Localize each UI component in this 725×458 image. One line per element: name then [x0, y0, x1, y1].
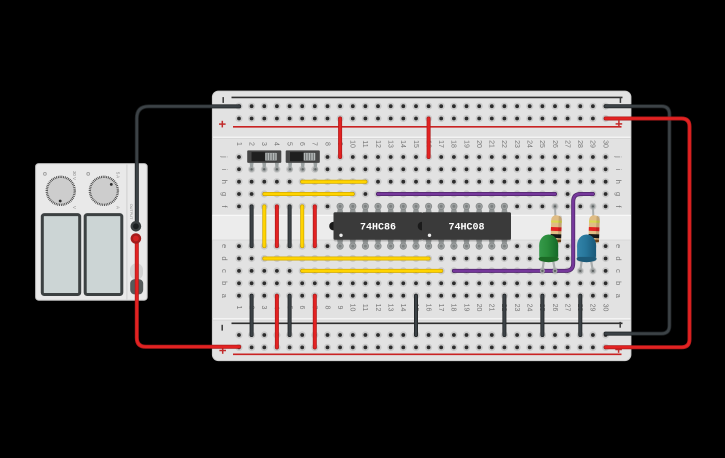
svg-text:30 V: 30 V	[72, 171, 77, 180]
svg-text:c: c	[614, 269, 623, 273]
svg-text:1: 1	[235, 142, 242, 146]
svg-text:74HC86: 74HC86	[360, 223, 396, 234]
svg-text:18: 18	[450, 140, 457, 148]
svg-text:25: 25	[538, 140, 545, 148]
svg-text:18: 18	[450, 304, 457, 312]
svg-text:5 A: 5 A	[116, 172, 121, 178]
svg-text:j: j	[220, 155, 229, 158]
svg-text:8: 8	[323, 306, 330, 310]
svg-text:6: 6	[298, 306, 305, 310]
svg-text:d: d	[614, 256, 623, 260]
svg-text:74HC08: 74HC08	[448, 223, 484, 234]
svg-text:28: 28	[576, 140, 583, 148]
svg-text:12: 12	[374, 140, 381, 148]
svg-text:e: e	[220, 244, 229, 248]
svg-text:7: 7	[311, 142, 318, 146]
svg-text:e: e	[614, 244, 623, 248]
svg-text:12: 12	[374, 304, 381, 312]
svg-text:30: 30	[601, 304, 608, 312]
svg-text:d: d	[220, 256, 229, 260]
svg-text:3: 3	[260, 142, 267, 146]
svg-text:4: 4	[273, 142, 280, 146]
svg-text:13: 13	[387, 140, 394, 148]
svg-text:19: 19	[462, 304, 469, 312]
svg-text:11: 11	[361, 140, 368, 147]
svg-text:11: 11	[361, 304, 368, 311]
svg-text:g: g	[220, 192, 229, 196]
svg-text:16: 16	[424, 304, 431, 312]
svg-text:10: 10	[349, 140, 356, 148]
svg-text:1: 1	[235, 306, 242, 310]
svg-text:15: 15	[412, 140, 419, 148]
svg-text:23: 23	[513, 304, 520, 312]
svg-text:26: 26	[551, 304, 558, 312]
svg-text:14: 14	[399, 304, 406, 312]
svg-text:c: c	[220, 269, 229, 273]
svg-text:27: 27	[563, 140, 570, 148]
svg-text:5: 5	[285, 142, 292, 146]
svg-text:j: j	[614, 155, 623, 158]
svg-text:21: 21	[488, 140, 495, 148]
svg-text:30: 30	[601, 140, 608, 148]
svg-text:29: 29	[589, 304, 596, 312]
svg-text:29: 29	[589, 140, 596, 148]
svg-text:20: 20	[475, 140, 482, 148]
svg-text:17: 17	[437, 304, 444, 312]
svg-text:24: 24	[526, 304, 533, 312]
svg-text:8: 8	[323, 142, 330, 146]
svg-text:20: 20	[475, 304, 482, 312]
svg-text:24: 24	[526, 140, 533, 148]
svg-text:b: b	[220, 281, 229, 285]
svg-text:h: h	[220, 180, 229, 184]
svg-text:23: 23	[513, 140, 520, 148]
svg-text:2: 2	[247, 142, 254, 146]
svg-text:6: 6	[298, 142, 305, 146]
svg-text:h: h	[614, 180, 623, 184]
svg-text:9: 9	[336, 306, 343, 310]
svg-text:A: A	[116, 206, 121, 209]
svg-text:21: 21	[488, 304, 495, 312]
svg-text:3: 3	[260, 306, 267, 310]
svg-text:22: 22	[500, 140, 507, 148]
svg-text:26: 26	[551, 140, 558, 148]
svg-text:17: 17	[437, 140, 444, 148]
svg-text:27: 27	[563, 304, 570, 312]
svg-text:V: V	[72, 206, 77, 209]
svg-text:g: g	[614, 192, 623, 196]
svg-text:b: b	[614, 281, 623, 285]
svg-text:10: 10	[349, 304, 356, 312]
svg-text:OUTPUT: OUTPUT	[129, 204, 133, 220]
svg-text:13: 13	[387, 304, 394, 312]
svg-text:19: 19	[462, 140, 469, 148]
svg-text:14: 14	[399, 140, 406, 148]
